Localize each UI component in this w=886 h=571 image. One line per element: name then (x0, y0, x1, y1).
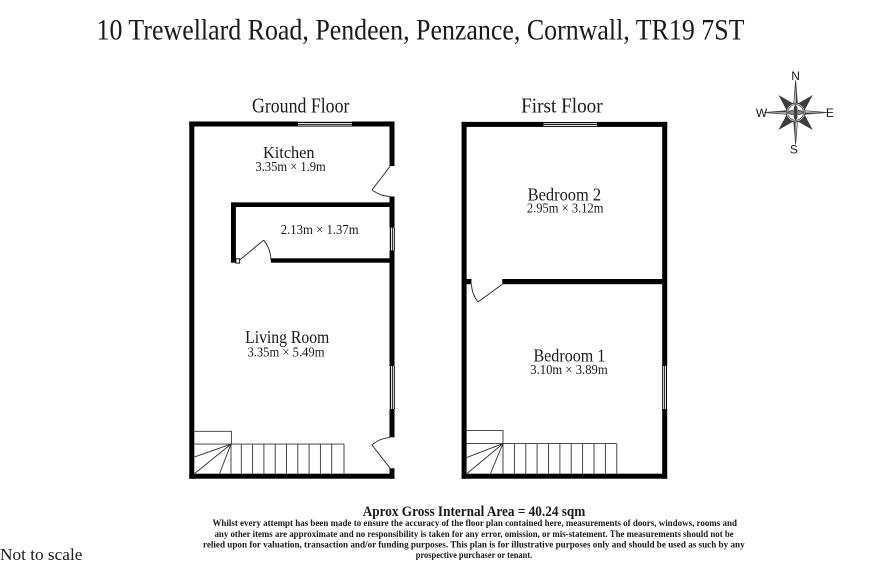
svg-text:3.35m × 5.49m: 3.35m × 5.49m (247, 345, 324, 360)
svg-text:Ground Floor: Ground Floor (252, 93, 349, 117)
svg-text:E: E (826, 106, 834, 120)
svg-text:any other items are approximat: any other items are approximate and no r… (215, 530, 734, 540)
svg-text:Not to scale: Not to scale (0, 545, 83, 564)
svg-text:3.10m × 3.89m: 3.10m × 3.89m (530, 362, 608, 377)
svg-text:2.95m × 3.12m: 2.95m × 3.12m (527, 200, 604, 215)
svg-text:Aprox Gross Internal Area = 40: Aprox Gross Internal Area = 40.24 sqm (363, 504, 586, 520)
svg-text:3.35m × 1.9m: 3.35m × 1.9m (256, 159, 327, 174)
svg-text:Whilst every attempt has been: Whilst every attempt has been made to en… (212, 519, 737, 529)
svg-text:S: S (790, 143, 798, 157)
svg-text:First Floor: First Floor (521, 93, 603, 117)
svg-text:relied upon for valuation, tra: relied upon for valuation, transaction a… (203, 541, 745, 551)
svg-text:2.13m × 1.37m: 2.13m × 1.37m (281, 222, 359, 237)
svg-text:prospective purchaser or tenan: prospective purchaser or tenant. (416, 551, 533, 561)
svg-text:W: W (756, 106, 768, 120)
svg-text:N: N (791, 69, 800, 83)
svg-text:10 Trewellard Road, Pendeen, P: 10 Trewellard Road, Pendeen, Penzance, C… (97, 14, 745, 47)
